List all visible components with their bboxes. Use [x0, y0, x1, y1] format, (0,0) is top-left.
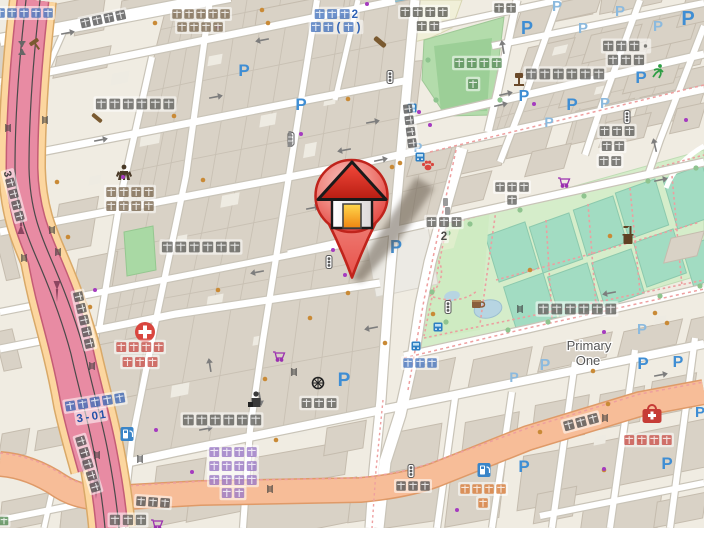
svg-text:P: P	[566, 95, 577, 114]
svg-text:P: P	[681, 8, 694, 30]
svg-text:Primary: Primary	[567, 338, 612, 353]
svg-text:P: P	[695, 404, 704, 421]
svg-text:P: P	[637, 321, 647, 338]
svg-text:P: P	[653, 18, 663, 35]
svg-text:P: P	[552, 0, 562, 15]
svg-text:P: P	[295, 95, 306, 114]
svg-text:P: P	[521, 18, 533, 38]
svg-text:P: P	[673, 354, 684, 371]
svg-text:One: One	[576, 353, 601, 368]
svg-text:P: P	[637, 354, 648, 373]
svg-text:P: P	[635, 68, 646, 87]
svg-text:P: P	[509, 369, 518, 385]
svg-text:P: P	[600, 95, 610, 112]
svg-text:P: P	[661, 454, 672, 473]
svg-text:P: P	[518, 457, 529, 476]
svg-text:P: P	[544, 114, 553, 130]
svg-text:P: P	[578, 20, 588, 37]
svg-text:(: (	[336, 22, 340, 34]
svg-text:P: P	[519, 88, 530, 105]
svg-text:P: P	[338, 370, 351, 391]
svg-text:2: 2	[352, 9, 358, 21]
svg-text:P: P	[238, 61, 249, 80]
svg-text:): )	[357, 22, 361, 34]
svg-text:P: P	[540, 357, 551, 374]
svg-text:2: 2	[441, 231, 447, 243]
svg-text:P: P	[615, 3, 625, 20]
